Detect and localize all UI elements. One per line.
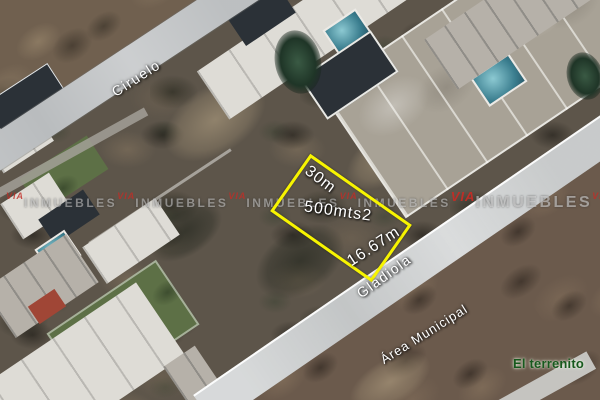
watermark-logo: VIAINMUEBLES xyxy=(592,196,600,210)
watermark-logo: VIAINMUEBLES xyxy=(117,196,228,210)
watermark-logo: VIAINMUEBLES xyxy=(6,196,117,210)
watermark-name-text: INMUEBLES xyxy=(135,196,228,210)
brand-label: El terrenito xyxy=(513,356,584,371)
watermark-via-text: VIA xyxy=(592,191,600,201)
watermark-via-text: VIA xyxy=(451,190,476,204)
watermark-name-text: INMUEBLES xyxy=(24,196,117,210)
watermark-via-text: VIA xyxy=(228,191,246,201)
satellite-map: VIAINMUEBLES VIAINMUEBLES VIAINMUEBLES V… xyxy=(0,0,600,400)
watermark-via-text: VIA xyxy=(6,191,24,201)
watermark-name-text: INMUEBLES xyxy=(475,194,592,212)
watermark-via-text: VIA xyxy=(117,191,135,201)
watermark-logo-large: VIAINMUEBLES xyxy=(451,194,592,212)
